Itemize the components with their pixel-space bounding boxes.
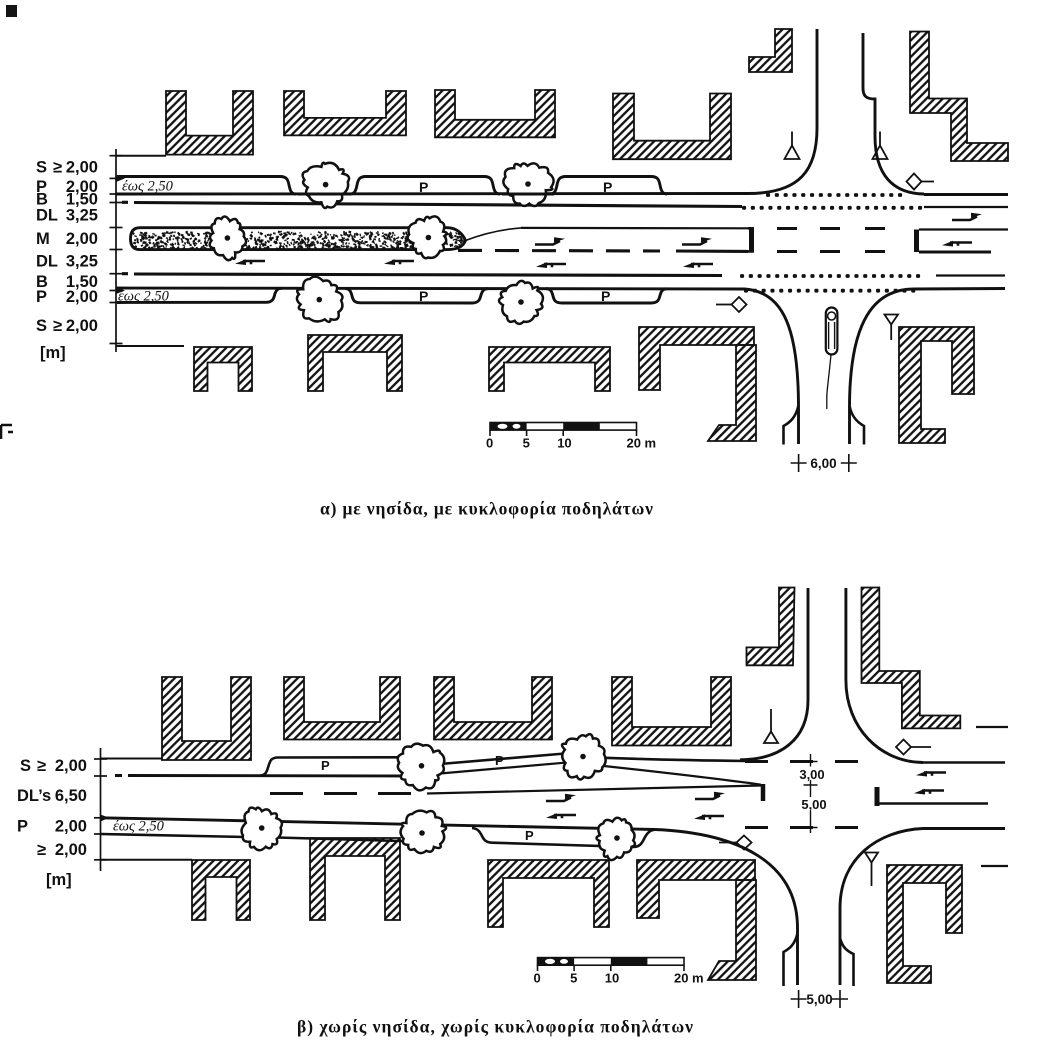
svg-text:έως 2,50: έως 2,50 [118, 289, 170, 305]
svg-text:S: S [36, 159, 47, 177]
svg-text:M: M [36, 230, 50, 248]
svg-text:5: 5 [523, 436, 530, 451]
svg-text:2,00: 2,00 [55, 818, 87, 836]
svg-text:5: 5 [570, 971, 577, 986]
svg-text:έως 2,50: έως 2,50 [113, 819, 165, 835]
svg-text:P: P [419, 288, 428, 304]
svg-text:5,00: 5,00 [806, 992, 832, 1007]
svg-text:3,00: 3,00 [799, 767, 824, 782]
svg-text:3,25: 3,25 [66, 207, 98, 225]
svg-text:DL’s: DL’s [17, 787, 51, 805]
svg-text:P: P [321, 758, 330, 773]
svg-text:P: P [36, 288, 47, 306]
svg-text:10: 10 [605, 971, 619, 986]
svg-text:≥: ≥ [53, 159, 62, 177]
svg-text:m: m [645, 436, 657, 451]
svg-text:2,00: 2,00 [66, 159, 98, 177]
svg-text:6,00: 6,00 [810, 456, 836, 471]
svg-text:m: m [692, 971, 704, 986]
svg-text:2,00: 2,00 [66, 288, 98, 306]
svg-text:20: 20 [674, 971, 688, 986]
svg-text:P: P [419, 179, 428, 195]
svg-text:S: S [20, 757, 31, 775]
svg-text:2,00: 2,00 [55, 757, 87, 775]
svg-text:P: P [601, 288, 610, 304]
svg-text:10: 10 [557, 436, 571, 451]
svg-text:β) χωρίς νησίδα, χωρίς κυκλοφ: β) χωρίς νησίδα, χωρίς κυκλοφορία ποδηλά… [297, 1017, 693, 1037]
svg-text:[m]: [m] [40, 344, 66, 362]
svg-text:6,50: 6,50 [55, 787, 87, 805]
svg-text:έως 2,50: έως 2,50 [122, 179, 174, 195]
svg-text:α) με νησίδα, με κυκλοφορία π: α) με νησίδα, με κυκλοφορία ποδηλάτων [320, 499, 653, 519]
svg-text:P: P [495, 753, 504, 768]
svg-text:P: P [525, 828, 534, 843]
svg-text:2,00: 2,00 [66, 317, 98, 335]
svg-text:P: P [17, 818, 28, 836]
svg-text:≥: ≥ [37, 841, 46, 859]
svg-text:2,00: 2,00 [55, 841, 87, 859]
svg-text:[m]: [m] [46, 871, 72, 889]
svg-text:≥: ≥ [53, 317, 62, 335]
svg-text:2,00: 2,00 [66, 230, 98, 248]
svg-text:20: 20 [627, 436, 641, 451]
svg-text:≥: ≥ [37, 757, 46, 775]
svg-text:3,25: 3,25 [66, 253, 98, 271]
svg-text:0: 0 [534, 971, 541, 986]
svg-text:0: 0 [486, 436, 493, 451]
svg-text:DL: DL [36, 253, 58, 271]
svg-text:DL: DL [36, 207, 58, 225]
svg-text:S: S [36, 317, 47, 335]
svg-text:5,00: 5,00 [801, 797, 826, 812]
svg-text:P: P [603, 179, 612, 195]
